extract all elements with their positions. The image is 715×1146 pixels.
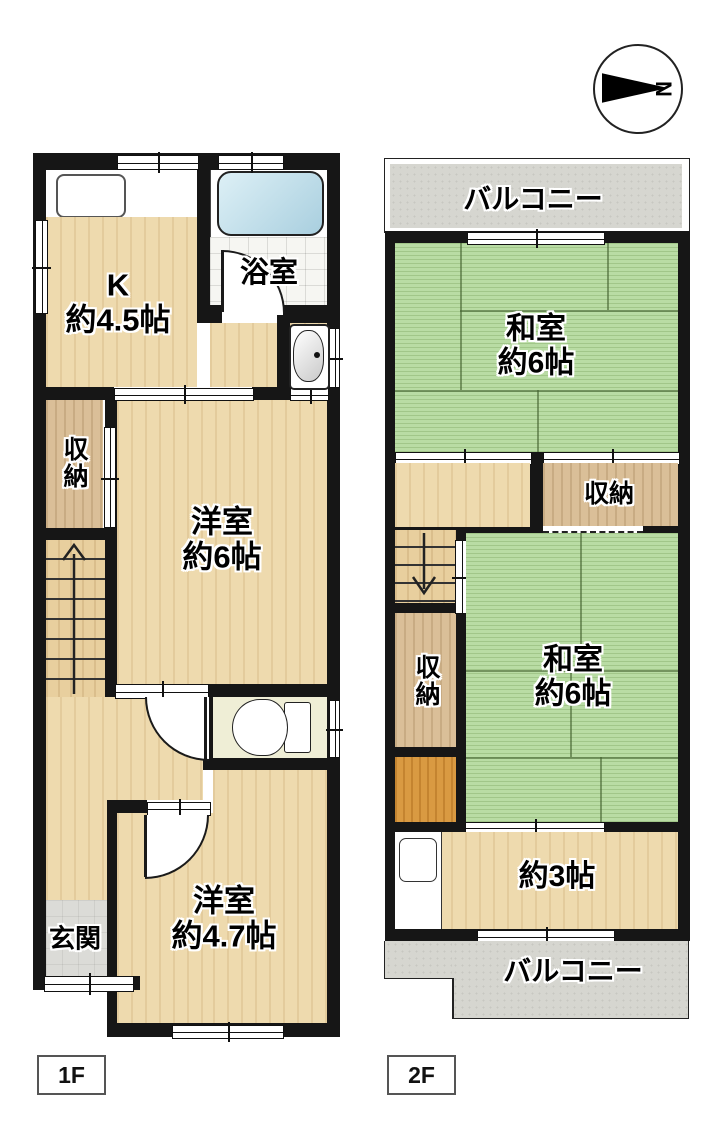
label-balcony-top: バルコニー (463, 183, 602, 214)
balcony-bottom-floor-left (384, 941, 453, 979)
washer-pan (399, 838, 437, 882)
room-label-japanese-lower: 和室 約6帖 (535, 643, 612, 710)
bathtub (217, 171, 324, 236)
entrance-door (44, 976, 134, 992)
wall (197, 305, 222, 323)
room-label-western6: 洋室 約6帖 (182, 505, 261, 574)
closet-wood-floor (395, 757, 458, 822)
floor-tag-2f: 2F (387, 1055, 456, 1095)
tatami-line (537, 390, 539, 452)
wall (33, 387, 114, 400)
window (329, 700, 340, 758)
room-label-storage-1f: 収納 (60, 436, 88, 490)
closet-sliding-door (104, 427, 116, 528)
window (218, 155, 284, 170)
window (172, 1025, 284, 1039)
wall (385, 603, 456, 613)
room-label-3jo: 約3帖 (519, 860, 596, 894)
sliding-door (114, 388, 254, 401)
room-label-storage-right: 収納 (584, 480, 634, 508)
compass-north-label: N (650, 81, 676, 97)
floor-tag-1f: 1F (37, 1055, 106, 1095)
landing-floor (395, 463, 530, 527)
floor-tag-2f-label: 2F (408, 1062, 435, 1089)
wall (385, 747, 458, 757)
room-label-storage-left: 収納 (412, 654, 440, 708)
window (117, 155, 199, 170)
stairs-up-arrow-icon (59, 542, 89, 698)
wall (107, 800, 117, 1037)
tatami-line (600, 757, 602, 822)
wall (678, 231, 690, 941)
wall (327, 153, 340, 1037)
kitchen-counter (56, 174, 126, 218)
wall (203, 758, 340, 770)
toilet-tank (284, 702, 311, 753)
wall (197, 163, 210, 323)
floorplan-canvas: N (0, 0, 715, 1146)
room-label-entrance: 玄関 (49, 924, 101, 953)
kitchen-floor-ext (210, 323, 278, 387)
door-opening (147, 802, 211, 816)
stairs-down-arrow-icon (409, 531, 439, 599)
tatami-line (607, 243, 609, 310)
window (467, 232, 605, 245)
room-label-kitchen: K 約4.5帖 (65, 268, 170, 337)
hall-floor-b (46, 800, 107, 900)
window (35, 220, 48, 314)
door-leaf (144, 815, 147, 877)
wall (283, 305, 340, 323)
floor-tag-1f-label: 1F (58, 1062, 85, 1089)
room-label-western47: 洋室 約4.7帖 (171, 884, 276, 953)
balcony-edge-line (452, 978, 454, 1018)
window (329, 328, 340, 388)
door-leaf (204, 697, 207, 759)
wall (252, 387, 290, 400)
tatami-line (466, 757, 678, 759)
toilet-bowl (232, 699, 288, 756)
door-leaf (221, 250, 224, 312)
room-label-bath: 浴室 (240, 257, 298, 289)
room-label-japanese-upper: 和室 約6帖 (498, 312, 575, 379)
label-balcony-bottom: バルコニー (503, 955, 642, 986)
tatami-line (460, 243, 462, 390)
faucet-dot (314, 352, 320, 358)
